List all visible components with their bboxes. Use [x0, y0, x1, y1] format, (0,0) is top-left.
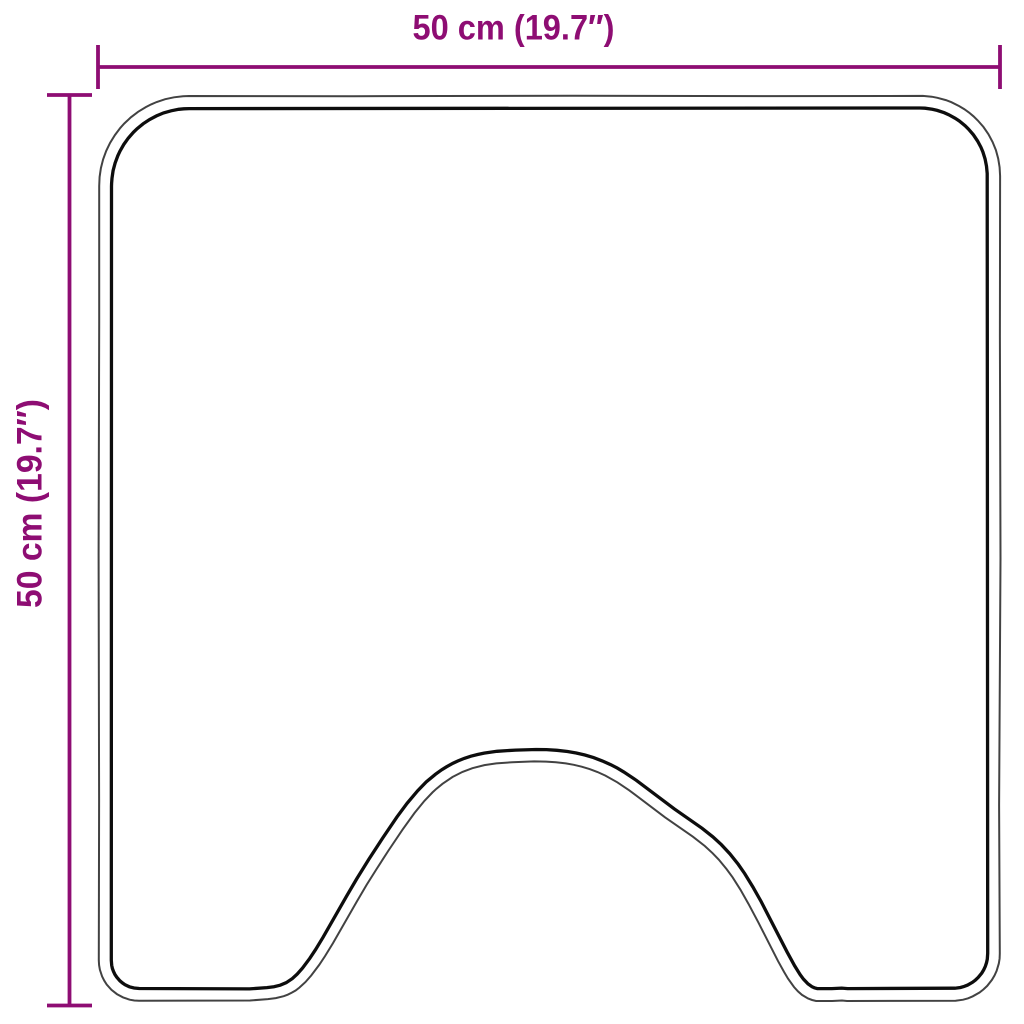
svg-text:50 cm (19.7″): 50 cm (19.7″): [10, 399, 50, 608]
svg-text:50 cm (19.7″): 50 cm (19.7″): [413, 8, 615, 48]
